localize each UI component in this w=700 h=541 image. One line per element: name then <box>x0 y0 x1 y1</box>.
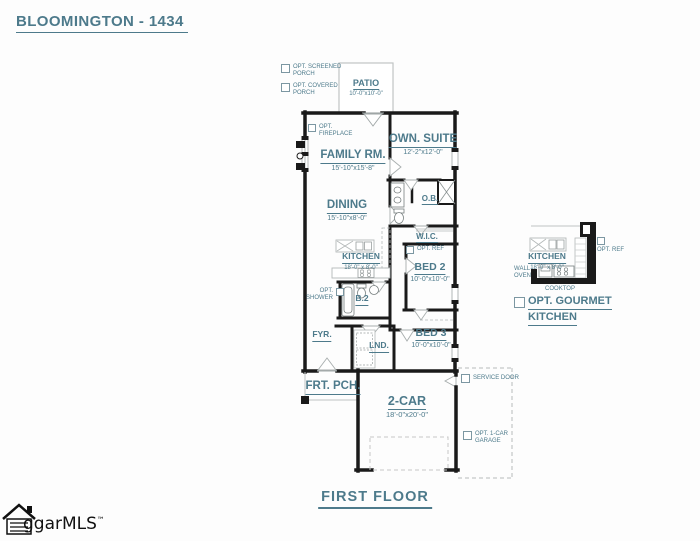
patio-door <box>362 113 384 126</box>
option-service-door: SERVICE DOOR <box>461 374 519 383</box>
room-label-bath2: B.2 <box>355 294 368 306</box>
room-label-owners-bath: O.B. <box>422 194 438 205</box>
option-refrigerator: OPT. REF <box>406 246 444 254</box>
room-label-front-porch: FRT. PCH. <box>306 380 361 395</box>
garage-walls <box>356 369 458 471</box>
covered-porch-checkbox <box>281 83 290 92</box>
room-label-kitchen: KITCHEN 18'-0" x 8'-0" <box>342 252 380 272</box>
floorplan-page: BLOOMINGTON - 1434 OPT. SCREENED PORCH O… <box>0 0 700 541</box>
room-label-owners-suite: OWN. SUITE 12'-2"x12'-0" <box>389 133 457 157</box>
room-label-laundry: LND. <box>369 341 389 353</box>
plan-title: BLOOMINGTON - 1434 <box>16 13 188 33</box>
room-label-dining: DINING 15'-10"x8'-0" <box>327 199 367 223</box>
option-one-car-garage: OPT. 1-CAR GARAGE <box>463 431 508 445</box>
option-fireplace: OPT. FIREPLACE <box>308 124 352 138</box>
option-gourmet-kitchen: OPT. GOURMET KITCHEN <box>514 295 612 327</box>
refrigerator-gourmet-checkbox <box>597 237 605 245</box>
shower-checkbox <box>336 288 344 296</box>
screened-porch-checkbox <box>281 64 290 73</box>
option-shower: OPT. SHOWER <box>306 288 344 302</box>
garage-door-dashed <box>370 437 448 470</box>
option-refrigerator-gourmet: OPT. REF <box>597 237 624 254</box>
room-label-bed3: BED 3 10'-0"x10'-0" <box>411 327 450 350</box>
trademark-symbol: ™ <box>97 515 105 524</box>
service-door-checkbox <box>461 374 470 383</box>
room-label-foyer: FYR. <box>312 330 331 342</box>
room-label-family: FAMILY RM. 15'-10"x15'-8" <box>320 149 385 173</box>
annotation-wall-oven: WALL OVEN <box>514 266 531 280</box>
room-label-wic: W.I.C. <box>416 232 438 243</box>
optional-one-car-garage-dashed <box>458 368 512 478</box>
refrigerator-checkbox <box>406 246 414 254</box>
room-label-gourmet-kitchen: KITCHEN 18'-0" x 8'-0" <box>528 252 566 272</box>
room-label-bed2: BED 2 10'-0"x10'-0" <box>410 261 449 284</box>
floor-title: FIRST FLOOR <box>318 489 432 509</box>
room-label-garage: 2-CAR 18'-0"x20'-0" <box>386 394 428 420</box>
fireplace-checkbox <box>308 124 316 132</box>
option-covered-porch: OPT. COVERED PORCH <box>281 83 338 97</box>
annotation-cooktop: COOKTOP <box>545 286 575 293</box>
option-screened-porch: OPT. SCREENED PORCH <box>281 64 341 78</box>
room-label-patio: PATIO 10'-0"x10'-0" <box>349 78 383 98</box>
mls-logo-text: ggarMLS™ <box>23 514 105 534</box>
one-car-garage-checkbox <box>463 431 472 440</box>
gourmet-kitchen-checkbox <box>514 297 525 308</box>
owners-shower <box>438 180 455 204</box>
